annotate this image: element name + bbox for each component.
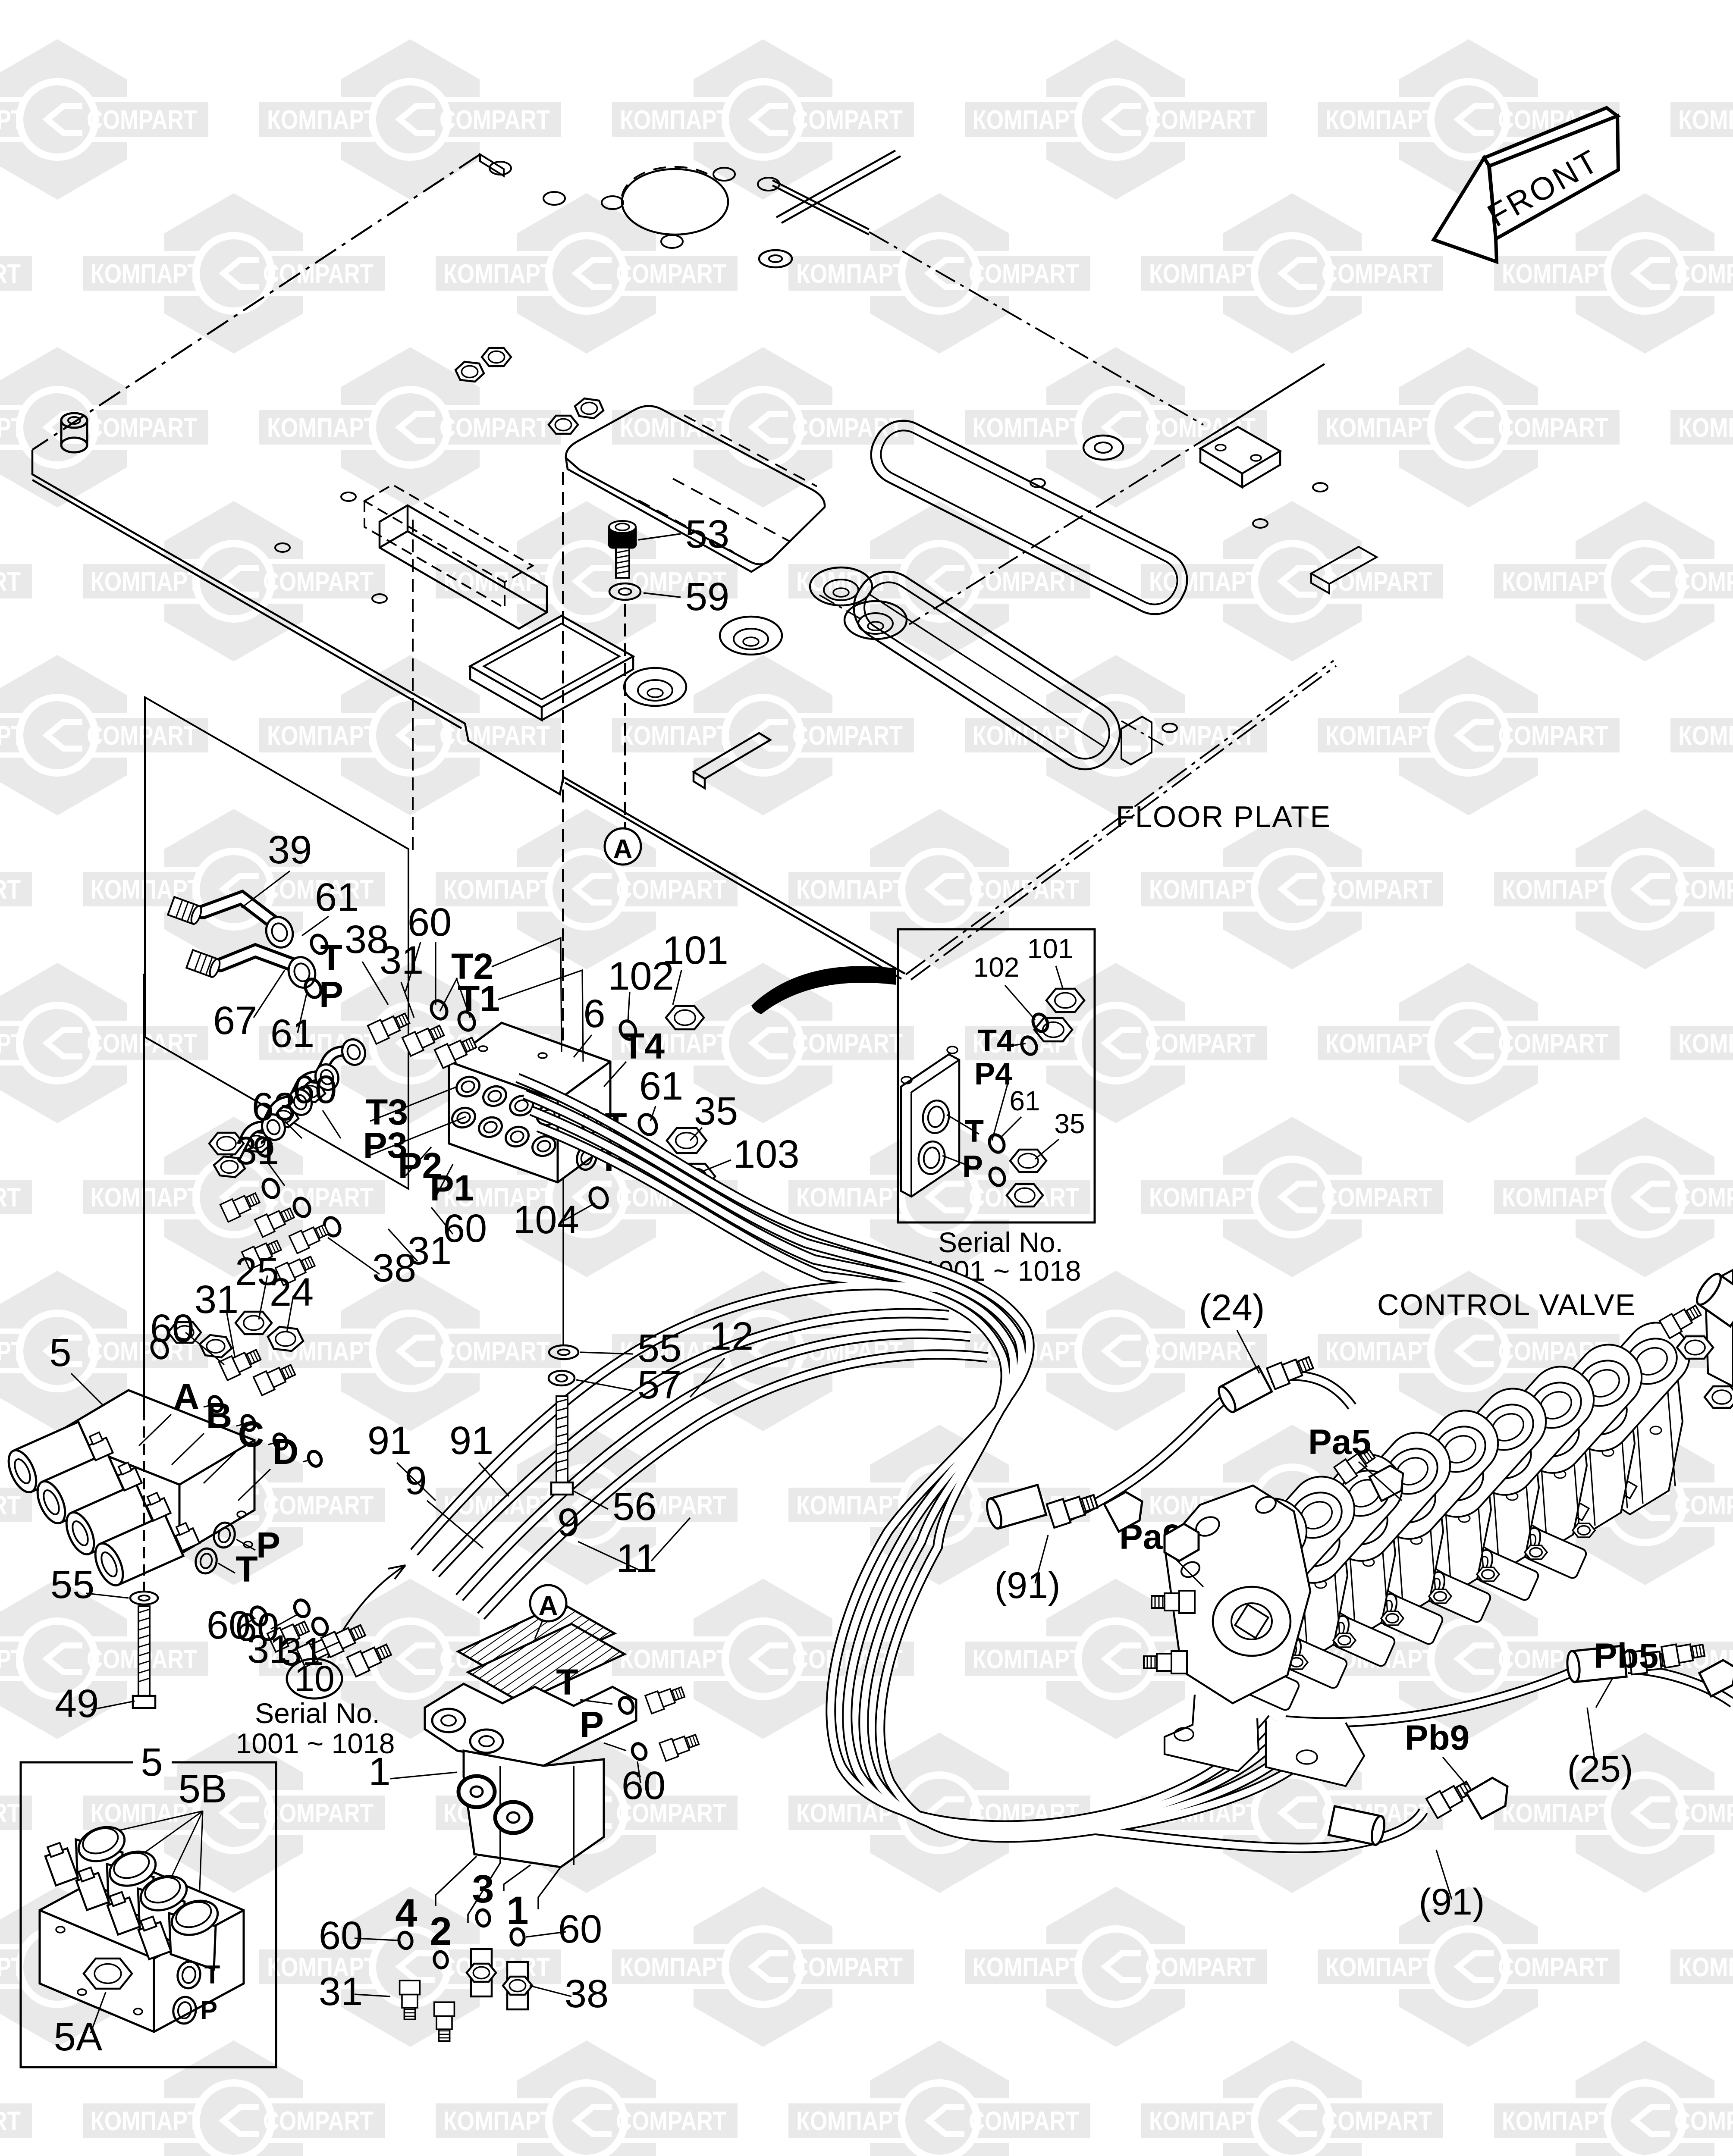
svg-text:60: 60 <box>293 1068 337 1112</box>
svg-text:61: 61 <box>1009 1085 1040 1116</box>
svg-text:P: P <box>256 1525 280 1565</box>
svg-text:Serial No.: Serial No. <box>938 1226 1063 1258</box>
svg-text:101: 101 <box>662 928 728 972</box>
svg-text:(24): (24) <box>1199 1287 1265 1329</box>
svg-text:63: 63 <box>252 1085 296 1129</box>
svg-text:59: 59 <box>685 575 729 619</box>
svg-text:1: 1 <box>506 1889 528 1933</box>
svg-text:61: 61 <box>639 1064 683 1108</box>
svg-text:61: 61 <box>315 875 359 919</box>
svg-text:102: 102 <box>973 952 1020 983</box>
svg-text:D: D <box>273 1431 299 1472</box>
svg-text:(91): (91) <box>995 1565 1061 1606</box>
svg-text:53: 53 <box>685 512 729 556</box>
svg-text:(91): (91) <box>1419 1881 1485 1923</box>
svg-text:Pb5: Pb5 <box>1594 1636 1658 1676</box>
svg-text:31: 31 <box>380 938 424 982</box>
svg-text:60: 60 <box>150 1307 194 1351</box>
svg-text:A: A <box>539 1591 558 1621</box>
svg-text:T: T <box>204 1960 220 1989</box>
svg-text:5B: 5B <box>179 1767 227 1811</box>
svg-text:60: 60 <box>235 1605 279 1649</box>
svg-text:P: P <box>580 1704 604 1745</box>
svg-text:Pb9: Pb9 <box>1405 1718 1469 1758</box>
svg-text:35: 35 <box>1054 1108 1085 1139</box>
svg-text:5: 5 <box>141 1740 163 1784</box>
svg-text:FLOOR PLATE: FLOOR PLATE <box>1116 800 1331 834</box>
svg-text:39: 39 <box>268 828 312 872</box>
svg-text:60: 60 <box>622 1764 666 1808</box>
svg-text:(25): (25) <box>1567 1749 1633 1790</box>
svg-text:31: 31 <box>235 1129 279 1173</box>
svg-text:103: 103 <box>733 1132 800 1176</box>
svg-text:49: 49 <box>55 1682 99 1726</box>
svg-text:31: 31 <box>195 1278 239 1322</box>
svg-text:56: 56 <box>612 1485 656 1529</box>
svg-text:P: P <box>319 974 343 1015</box>
svg-text:61: 61 <box>270 1012 314 1056</box>
svg-text:91: 91 <box>367 1419 411 1463</box>
svg-text:C: C <box>238 1414 264 1454</box>
svg-text:5: 5 <box>49 1331 71 1375</box>
svg-text:Pa5: Pa5 <box>1308 1423 1371 1462</box>
svg-text:A: A <box>173 1376 200 1417</box>
svg-text:T: T <box>320 937 342 978</box>
svg-text:35: 35 <box>694 1089 738 1133</box>
svg-text:P1: P1 <box>430 1168 474 1208</box>
svg-text:55: 55 <box>50 1563 94 1607</box>
svg-text:4: 4 <box>395 1891 417 1935</box>
svg-text:CONTROL VALVE: CONTROL VALVE <box>1377 1288 1636 1322</box>
svg-text:91: 91 <box>449 1419 493 1463</box>
svg-text:11: 11 <box>616 1536 657 1580</box>
svg-text:101: 101 <box>1027 933 1074 964</box>
svg-text:60: 60 <box>319 1914 363 1958</box>
svg-text:T: T <box>556 1662 578 1702</box>
svg-text:67: 67 <box>213 999 257 1043</box>
svg-text:T4: T4 <box>622 1026 665 1066</box>
svg-text:38: 38 <box>565 1972 609 2016</box>
svg-text:2: 2 <box>430 1909 452 1953</box>
svg-text:60: 60 <box>558 1907 602 1951</box>
svg-text:1: 1 <box>368 1750 390 1794</box>
svg-text:A: A <box>613 834 633 864</box>
svg-text:9: 9 <box>557 1501 579 1545</box>
svg-text:T4: T4 <box>978 1024 1014 1058</box>
svg-text:T: T <box>235 1549 257 1589</box>
svg-text:60: 60 <box>408 900 452 944</box>
svg-text:B: B <box>206 1395 232 1436</box>
svg-text:6: 6 <box>583 992 605 1036</box>
svg-text:12: 12 <box>710 1314 753 1358</box>
svg-text:57: 57 <box>637 1363 681 1407</box>
svg-text:3: 3 <box>472 1867 494 1911</box>
svg-text:Serial No.: Serial No. <box>255 1697 380 1729</box>
svg-text:31: 31 <box>319 1970 363 2014</box>
svg-text:104: 104 <box>513 1198 579 1242</box>
svg-text:P: P <box>200 1996 217 2024</box>
